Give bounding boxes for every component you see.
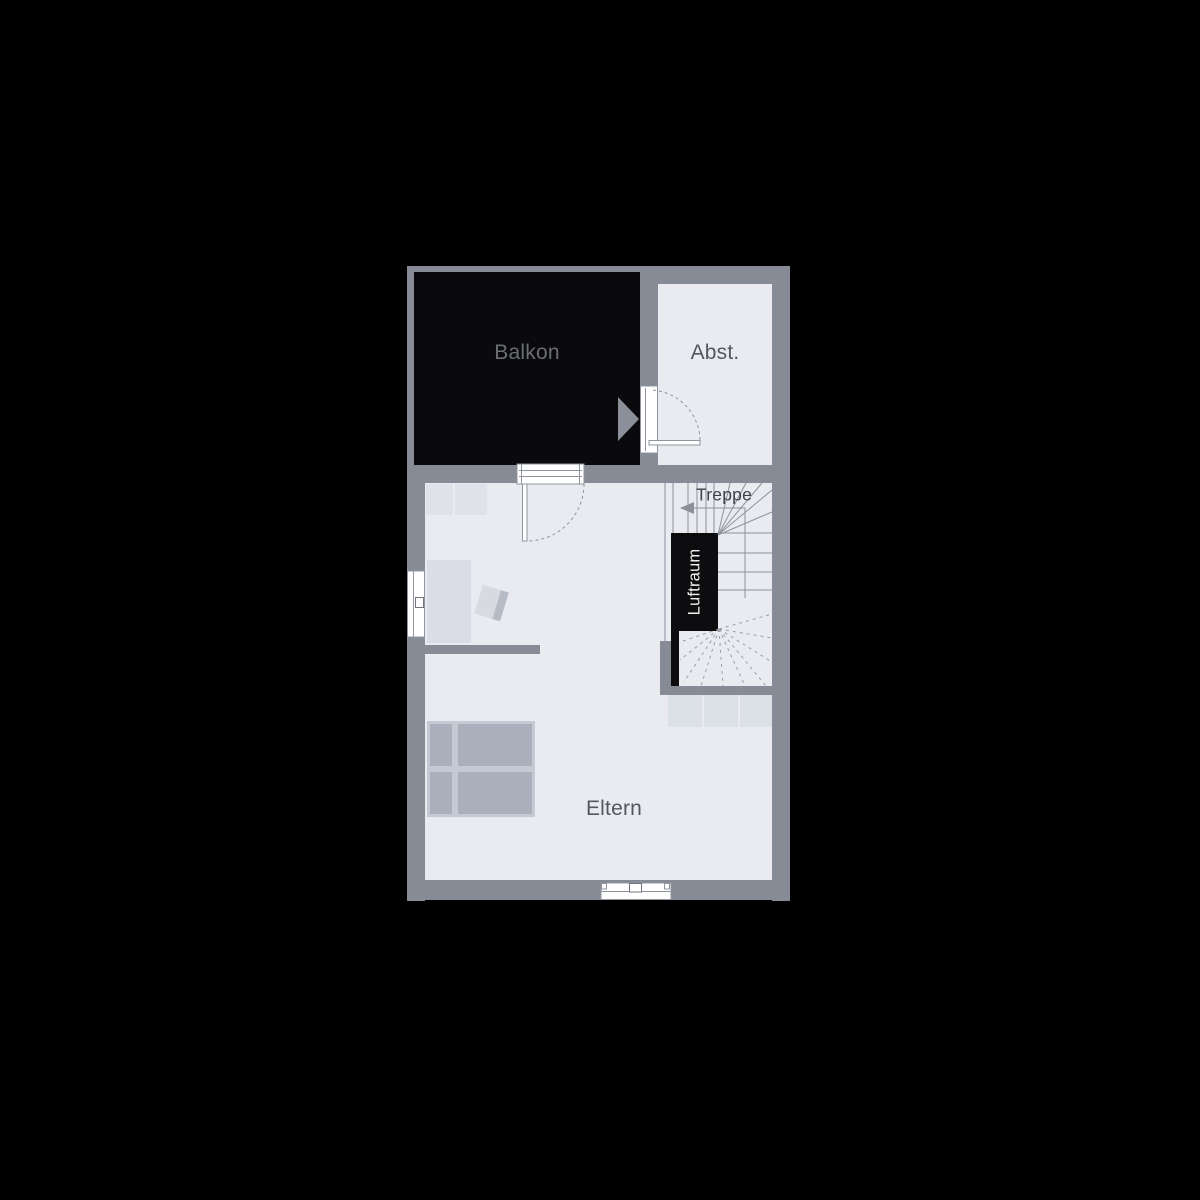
balcony-parapet-top <box>407 266 640 272</box>
interior-wall-mid <box>407 465 790 483</box>
bed-mattress <box>458 772 532 814</box>
stair-bottom-wall <box>660 686 772 695</box>
exterior-wall-bottom <box>407 880 790 900</box>
bedroom-stub-wall <box>425 645 540 654</box>
closet-divider <box>702 695 704 727</box>
bed-pillow <box>430 772 452 814</box>
closet-divider <box>738 695 740 727</box>
wall-balcony-storage <box>640 266 658 465</box>
floorplan: Balkon Abst. Treppe Luftraum Eltern <box>0 0 1200 1200</box>
exterior-wall-left <box>407 465 425 901</box>
luftraum-void-strip <box>671 631 679 686</box>
label-abst: Abst. <box>691 341 740 365</box>
wardrobe <box>426 484 487 515</box>
wardrobe-divider <box>453 484 455 515</box>
balcony-parapet-left <box>407 266 414 465</box>
exterior-wall-right <box>772 266 790 901</box>
label-balkon: Balkon <box>494 341 559 365</box>
label-luftraum: Luftraum <box>686 549 705 616</box>
label-treppe: Treppe <box>696 485 752 506</box>
desk <box>427 560 471 643</box>
label-eltern: Eltern <box>586 797 642 821</box>
closet-under-stairs <box>668 695 772 727</box>
exterior-wall-top <box>640 266 790 284</box>
stair-side-stub-wall <box>660 641 671 695</box>
double-bed <box>427 721 535 817</box>
balcony-floor <box>414 272 640 465</box>
bed-mattress <box>458 724 532 766</box>
storage-room-floor <box>658 284 772 465</box>
bed-pillow <box>430 724 452 766</box>
